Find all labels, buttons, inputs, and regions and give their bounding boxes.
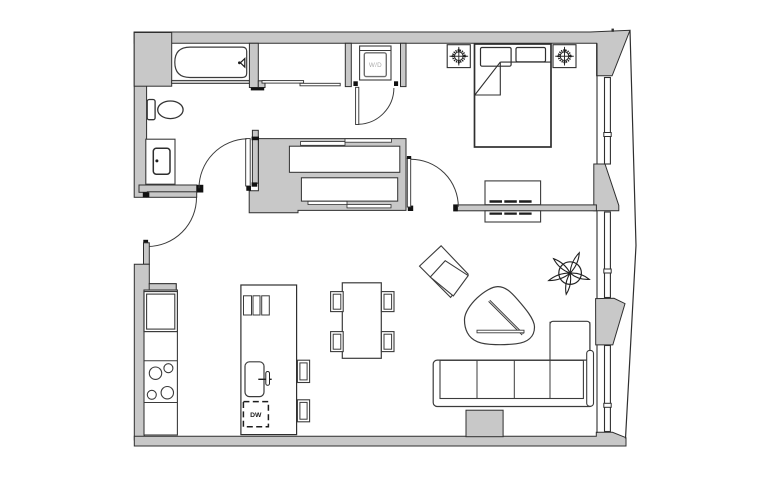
svg-text:DW: DW (250, 412, 262, 419)
svg-text:W/D: W/D (369, 62, 382, 69)
